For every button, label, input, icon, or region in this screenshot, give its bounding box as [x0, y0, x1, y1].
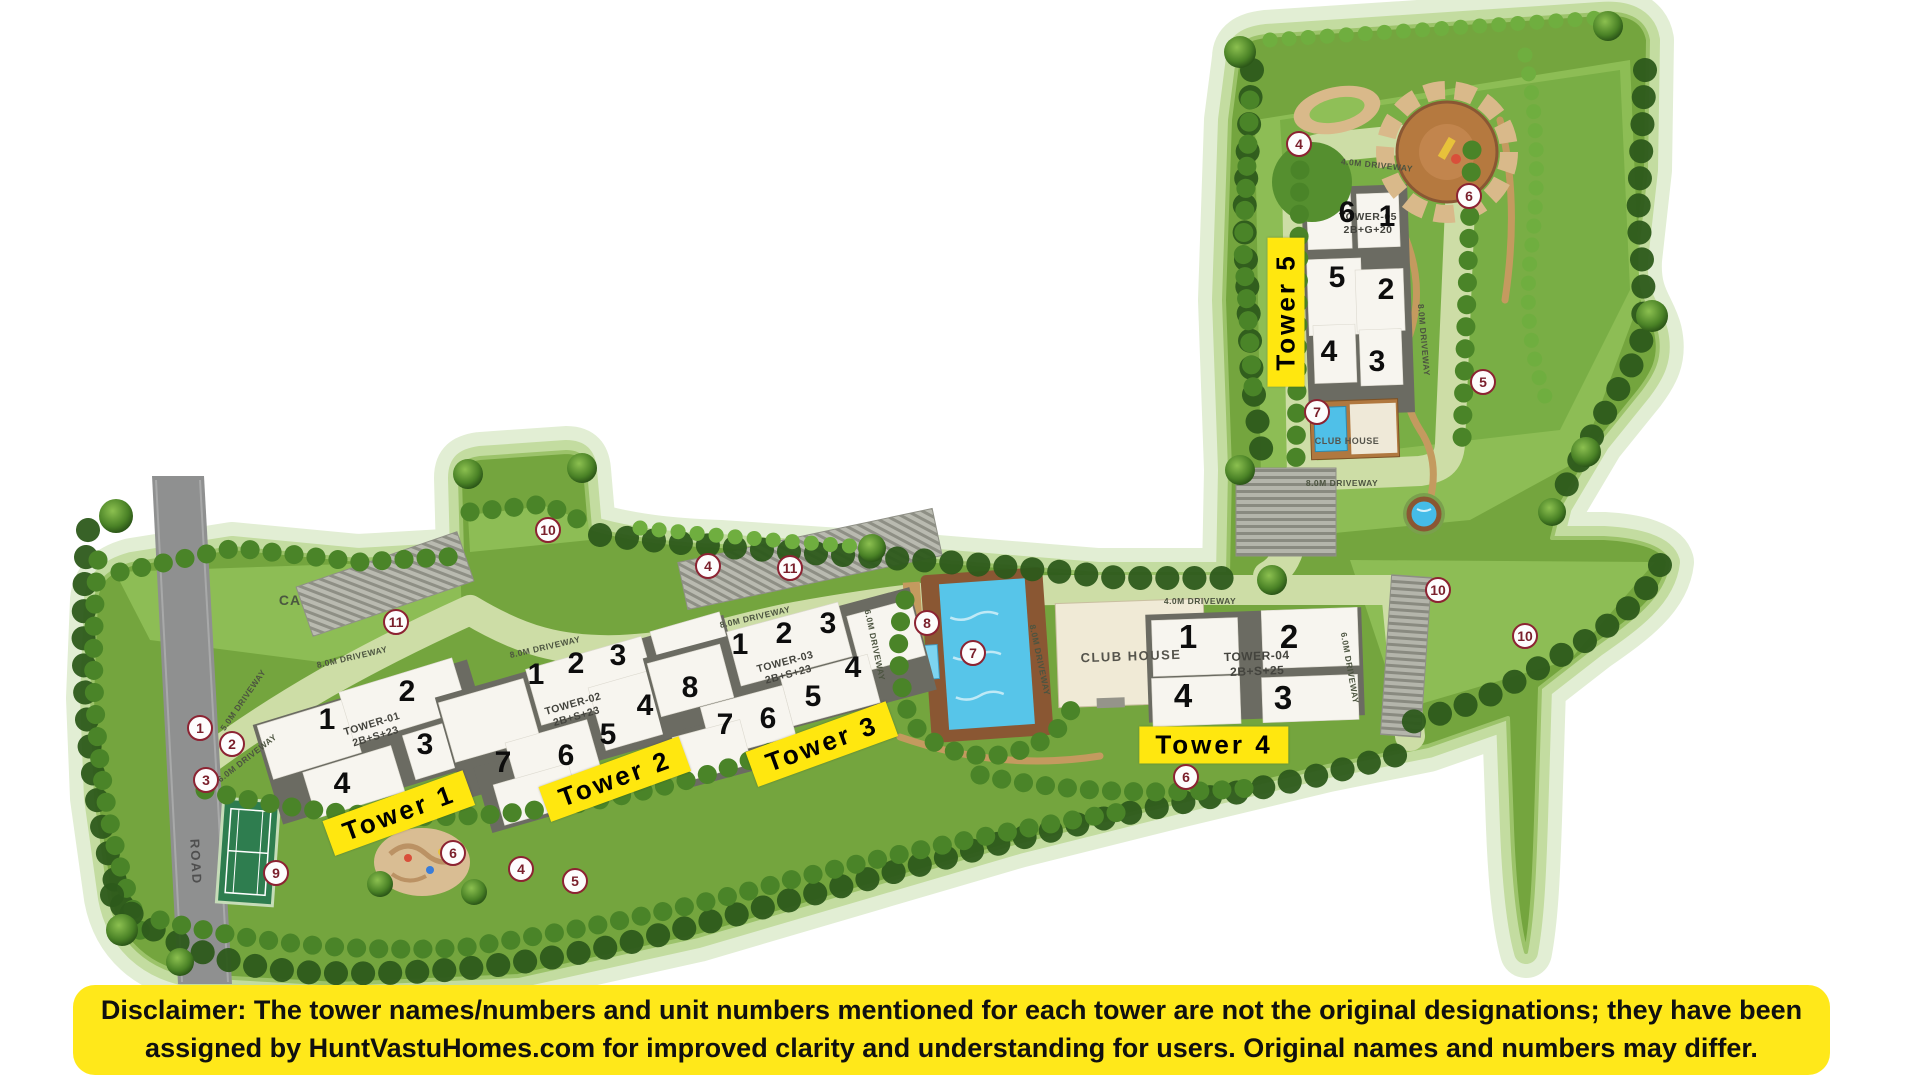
disclaimer-banner: Disclaimer: The tower names/numbers and …: [73, 985, 1830, 1075]
amenity-marker: 10: [1425, 577, 1451, 603]
tower-5-unit: 6: [1339, 196, 1356, 230]
tower-5-unit: 4: [1321, 335, 1338, 369]
amenity-marker: 5: [1470, 369, 1496, 395]
amenity-marker: 5: [562, 868, 588, 894]
amenity-marker: 4: [508, 856, 534, 882]
disclaimer-line2: assigned by HuntVastuHomes.com for impro…: [145, 1030, 1758, 1068]
amenity-marker: 7: [960, 640, 986, 666]
tower-4-unit: 4: [1174, 677, 1192, 715]
site-map-svg: [0, 0, 1920, 1080]
tower-2-unit: 4: [637, 689, 654, 723]
amenity-marker: 3: [193, 767, 219, 793]
amenity-marker: 6: [1173, 764, 1199, 790]
tower-2-unit: 8: [682, 671, 699, 705]
tower-4-unit: 3: [1274, 679, 1292, 717]
tower-5-label: Tower 5: [1268, 237, 1305, 386]
amenity-marker: 10: [535, 517, 561, 543]
tower-5-unit: 3: [1369, 345, 1386, 379]
tower-3-unit: 2: [776, 617, 793, 651]
tower-1-unit: 2: [399, 675, 416, 709]
amenity-marker: 1: [187, 715, 213, 741]
driveway-label: 8.0M DRIVEWAY: [1306, 478, 1378, 488]
amenity-marker: 7: [1304, 399, 1330, 425]
driveway-label: 4.0M DRIVEWAY: [1164, 596, 1236, 606]
amenity-marker: 11: [383, 609, 409, 635]
site-plan-page: ROAD CA CLUB HOUSE CLUB HOUSE TOWER-01 2…: [0, 0, 1920, 1080]
ca-label: CA: [279, 592, 301, 608]
pond: [1403, 493, 1445, 535]
road-label: ROAD: [187, 838, 204, 885]
tower-2-unit: 5: [600, 718, 617, 752]
tower-2-unit: 6: [558, 739, 575, 773]
amenity-marker: 10: [1512, 623, 1538, 649]
tower-2-unit: 2: [568, 647, 585, 681]
tower-3-unit: 4: [845, 651, 862, 685]
tower-2-unit: 7: [495, 746, 512, 780]
amenity-marker: 11: [777, 555, 803, 581]
tower-3-unit: 7: [717, 708, 734, 742]
amenity-marker: 4: [1286, 131, 1312, 157]
tower-1-unit: 3: [417, 728, 434, 762]
club-house-tower5-label: CLUB HOUSE: [1315, 436, 1380, 446]
tower-5-unit: 2: [1378, 273, 1395, 307]
tower-4-label: Tower 4: [1139, 727, 1288, 764]
tower-4-floors: 2B+S+25: [1224, 663, 1290, 680]
tower-3-unit: 5: [805, 680, 822, 714]
amenity-marker: 6: [440, 840, 466, 866]
tower-5-unit: 1: [1379, 200, 1396, 234]
tower-5-unit: 5: [1329, 261, 1346, 295]
amenity-marker: 4: [695, 553, 721, 579]
tower-3-unit: 3: [820, 607, 837, 641]
tower-1-unit: 4: [334, 767, 351, 801]
amenity-marker: 9: [263, 860, 289, 886]
tower-4-unit: 1: [1179, 618, 1197, 656]
tennis-court: [216, 798, 279, 906]
tower-2-unit: 3: [610, 639, 627, 673]
tower-3-unit: 6: [760, 702, 777, 736]
amenity-marker: 6: [1456, 183, 1482, 209]
tower-2-unit: 1: [528, 658, 545, 692]
tower-4-unit: 2: [1280, 618, 1298, 656]
disclaimer-line1: Disclaimer: The tower names/numbers and …: [101, 992, 1802, 1030]
tower-3-unit: 1: [732, 628, 749, 662]
amenity-marker: 2: [219, 731, 245, 757]
amenity-marker: 8: [914, 610, 940, 636]
tower-1-unit: 1: [319, 703, 336, 737]
